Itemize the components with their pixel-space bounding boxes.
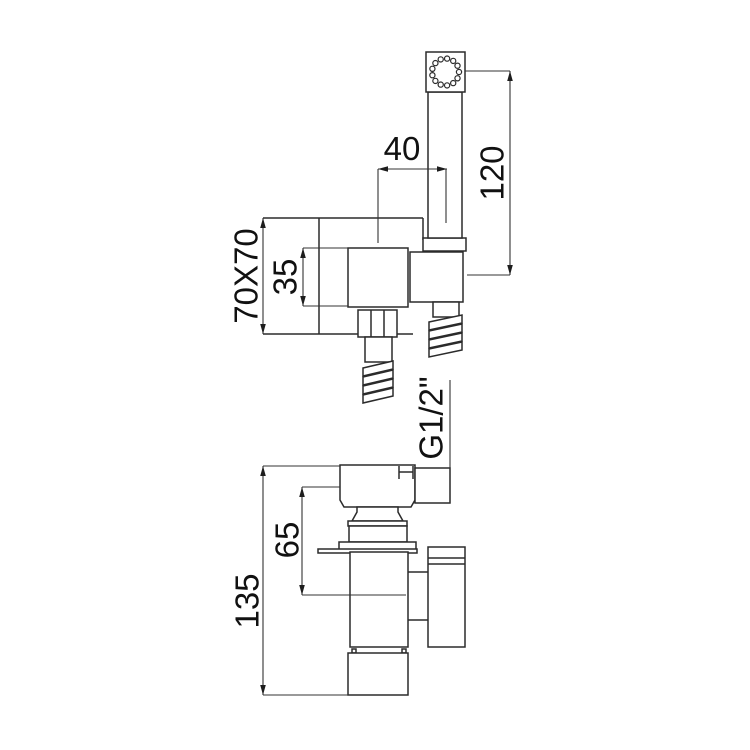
dim-label-70x70: 70X70 [228, 228, 265, 323]
dim-label-35: 35 [267, 259, 304, 296]
outlet-fitting [415, 468, 450, 503]
dim-label-135: 135 [229, 573, 266, 628]
dim-35-knob: 35 [267, 248, 349, 306]
dim-label-65: 65 [269, 522, 306, 559]
bottom-block [348, 653, 408, 695]
dim-120-shower-length: 120 [465, 71, 513, 275]
inlet-stub [365, 337, 392, 362]
hose-stub [433, 302, 459, 317]
upper-body [349, 526, 407, 542]
shower-handle-shaft [428, 92, 462, 238]
dim-label-120: 120 [474, 145, 511, 200]
dim-135-total-height: 135 [229, 466, 349, 695]
main-column [350, 552, 408, 647]
dim-label-40: 40 [384, 130, 421, 167]
drawing-svg: 40 120 70X70 35 G1/2" [0, 0, 750, 750]
holder-front [428, 547, 465, 647]
side-view [263, 52, 466, 403]
handle-nut-band [423, 238, 466, 251]
inlet-thread-coil [363, 361, 393, 403]
technical-drawing-canvas: 40 120 70X70 35 G1/2" [0, 0, 750, 750]
dim-label-g12: G1/2" [413, 376, 450, 459]
neck [352, 507, 403, 521]
hex-nut [358, 310, 397, 337]
shower-holder-block [410, 252, 463, 302]
front-view [318, 465, 465, 695]
dim-70x70-plate: 70X70 [228, 218, 266, 334]
hose-coil [429, 315, 462, 357]
mixer-knob [348, 248, 408, 307]
